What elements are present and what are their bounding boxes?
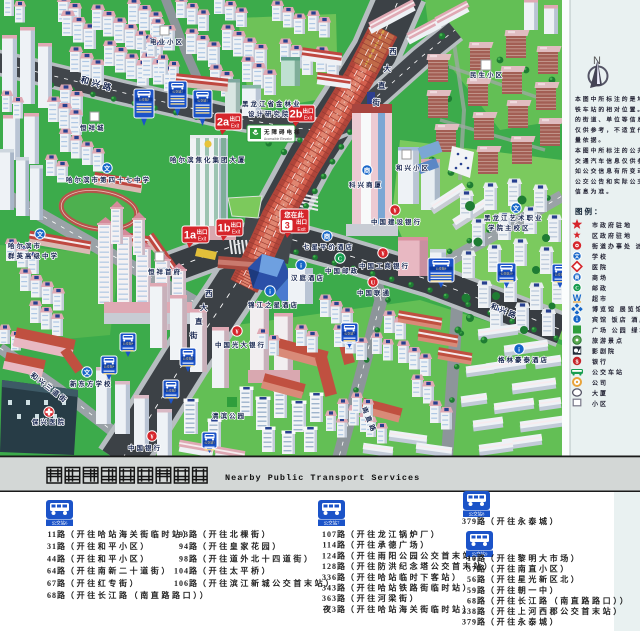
svg-text:出口: 出口 bbox=[196, 228, 207, 236]
svg-text:街: 街 bbox=[372, 97, 383, 107]
svg-text:出口: 出口 bbox=[296, 218, 307, 226]
svg-text:西: 西 bbox=[389, 47, 399, 56]
svg-text:公交站1: 公交站1 bbox=[197, 98, 208, 103]
svg-text:Accessible Elevator: Accessible Elevator bbox=[264, 137, 293, 141]
svg-text:本图中所标注的是地: 本图中所标注的是地 bbox=[575, 95, 640, 103]
svg-text:恒祥城: 恒祥城 bbox=[80, 123, 106, 132]
svg-text:（开往北棵街）: （开往北棵街） bbox=[198, 529, 272, 539]
svg-text:公交站10: 公交站10 bbox=[500, 271, 513, 276]
svg-text:64路: 64路 bbox=[47, 566, 66, 576]
svg-text:（开往承德广场）: （开往承德广场） bbox=[346, 540, 431, 550]
svg-text:出口: 出口 bbox=[229, 115, 240, 123]
svg-text:锦江之星酒店: 锦江之星酒店 bbox=[248, 300, 299, 309]
svg-text:68路: 68路 bbox=[47, 590, 66, 600]
svg-text:出口: 出口 bbox=[302, 107, 313, 115]
svg-text:Exit: Exit bbox=[297, 227, 306, 233]
svg-text:公交站5: 公交站5 bbox=[204, 440, 215, 445]
svg-text:公交站5: 公交站5 bbox=[166, 388, 177, 393]
svg-text:338路: 338路 bbox=[462, 606, 486, 616]
svg-text:106路: 106路 bbox=[174, 578, 198, 588]
svg-text:学院主校区: 学院主校区 bbox=[488, 223, 531, 232]
svg-text:哈尔滨市: 哈尔滨市 bbox=[8, 241, 42, 250]
svg-text:文: 文 bbox=[103, 163, 111, 172]
svg-text:公交站6: 公交站6 bbox=[436, 266, 447, 271]
svg-text:（开往永泰城）: （开往永泰城） bbox=[486, 516, 560, 526]
svg-text:Exit: Exit bbox=[232, 230, 241, 236]
svg-text:Nearby Public Transport Servic: Nearby Public Transport Services bbox=[225, 473, 420, 483]
svg-text:104路: 104路 bbox=[174, 566, 198, 576]
svg-text:（开往南新二十道街）: （开往南新二十道街） bbox=[66, 566, 172, 576]
svg-text:i: i bbox=[269, 288, 271, 295]
svg-text:夜3路: 夜3路 bbox=[322, 604, 346, 614]
svg-text:哈尔滨市第四十七中学: 哈尔滨市第四十七中学 bbox=[66, 175, 151, 184]
svg-text:（开往太平桥）: （开往太平桥） bbox=[198, 566, 272, 576]
svg-text:保兴医院: 保兴医院 bbox=[31, 417, 66, 426]
svg-text:（开往红专街）: （开往红专街） bbox=[66, 578, 140, 588]
svg-text:商: 商 bbox=[364, 165, 371, 174]
svg-text:直: 直 bbox=[195, 316, 205, 326]
svg-text:（开往皇家花园）: （开往皇家花园） bbox=[198, 541, 283, 551]
svg-text:（开往朝一中）: （开往朝一中） bbox=[486, 585, 560, 595]
svg-text:公交站4: 公交站4 bbox=[104, 364, 115, 369]
svg-text:（开往长江路（南直路路口））: （开往长江路（南直路路口）） bbox=[66, 590, 210, 600]
svg-text:中国银行: 中国银行 bbox=[128, 443, 162, 452]
svg-text:银行: 银行 bbox=[592, 358, 608, 366]
svg-text:$: $ bbox=[575, 360, 578, 366]
svg-text:旅游景点: 旅游景点 bbox=[591, 337, 624, 345]
svg-text:区政府驻地: 区政府驻地 bbox=[592, 232, 632, 240]
svg-text:格林豪泰酒店: 格林豪泰酒店 bbox=[498, 355, 549, 364]
svg-text:出口: 出口 bbox=[230, 221, 241, 229]
svg-text:商: 商 bbox=[324, 231, 331, 240]
svg-text:67路: 67路 bbox=[47, 578, 66, 588]
svg-text:信息为准。: 信息为准。 bbox=[575, 188, 614, 196]
svg-text:Exit: Exit bbox=[304, 116, 313, 122]
svg-text:3: 3 bbox=[285, 221, 290, 231]
svg-text:U: U bbox=[371, 279, 376, 286]
svg-text:新东方学校: 新东方学校 bbox=[70, 379, 113, 388]
svg-text:影剧院: 影剧院 bbox=[592, 348, 616, 356]
svg-text:379路: 379路 bbox=[462, 516, 486, 526]
svg-text:铁车站的相对位置。图中: 铁车站的相对位置。图中 bbox=[575, 105, 640, 113]
svg-text:公交站5: 公交站5 bbox=[183, 356, 194, 361]
svg-text:1a: 1a bbox=[184, 230, 197, 242]
svg-text:公司: 公司 bbox=[592, 379, 608, 387]
svg-text:C: C bbox=[575, 286, 579, 291]
svg-text:（开往道外北十四道街）: （开往道外北十四道街） bbox=[198, 553, 315, 563]
svg-text:您在此: 您在此 bbox=[284, 210, 304, 219]
svg-text:小区: 小区 bbox=[591, 400, 608, 408]
svg-text:学校: 学校 bbox=[592, 253, 608, 261]
svg-text:清滨公园: 清滨公园 bbox=[212, 411, 246, 420]
svg-text:中国邮政: 中国邮政 bbox=[325, 266, 359, 275]
svg-text:379路: 379路 bbox=[462, 617, 486, 627]
svg-text:的街道、单位等信息位置: 的街道、单位等信息位置 bbox=[575, 116, 640, 124]
svg-text:11路: 11路 bbox=[47, 529, 66, 539]
svg-text:公交站2: 公交站2 bbox=[172, 89, 183, 94]
svg-text:（开往和平小区）: （开往和平小区） bbox=[66, 541, 151, 551]
svg-text:2b: 2b bbox=[290, 109, 303, 121]
svg-text:黑龙江省金林业: 黑龙江省金林业 bbox=[242, 99, 302, 108]
svg-text:（开往滨江新城公交首末站）: （开往滨江新城公交首末站） bbox=[198, 578, 336, 588]
svg-text:量依据。: 量依据。 bbox=[575, 136, 606, 144]
svg-text:公交站7: 公交站7 bbox=[324, 520, 340, 527]
svg-text:图例：: 图例： bbox=[575, 206, 604, 216]
svg-text:七星平价酒店: 七星平价酒店 bbox=[303, 242, 354, 251]
svg-text:（开往永泰城）: （开往永泰城） bbox=[486, 617, 560, 627]
svg-text:中国建设银行: 中国建设银行 bbox=[371, 217, 422, 226]
svg-text:直: 直 bbox=[378, 80, 388, 90]
svg-text:（开往和平小区）: （开往和平小区） bbox=[66, 553, 151, 563]
svg-text:56路: 56路 bbox=[467, 574, 486, 584]
svg-text:44路: 44路 bbox=[47, 553, 66, 563]
svg-text:107路: 107路 bbox=[322, 529, 346, 539]
svg-text:邮政: 邮政 bbox=[592, 285, 608, 293]
svg-text:124路: 124路 bbox=[322, 550, 346, 560]
svg-text:（开往哈站临时下客站）: （开往哈站临时下客站） bbox=[346, 572, 463, 582]
svg-text:公交公告和实际公交站牌: 公交公告和实际公交站牌 bbox=[575, 177, 640, 185]
svg-text:商: 商 bbox=[574, 274, 579, 281]
svg-text:哈尔滨焦化集团大厦: 哈尔滨焦化集团大厦 bbox=[170, 155, 247, 164]
svg-text:（开往南直小区）: （开往南直小区） bbox=[486, 564, 571, 574]
svg-text:343路: 343路 bbox=[322, 583, 346, 593]
svg-text:363路: 363路 bbox=[322, 593, 346, 603]
svg-text:（开往河梁街）: （开往河梁街） bbox=[346, 593, 420, 603]
svg-text:和兴小区: 和兴小区 bbox=[395, 163, 430, 172]
svg-text:68路: 68路 bbox=[467, 595, 486, 605]
svg-text:街道办事处 派出所: 街道办事处 派出所 bbox=[591, 243, 640, 251]
svg-text:交通汽车信息仅供参考，: 交通汽车信息仅供参考， bbox=[575, 157, 640, 165]
svg-text:中国工商银行: 中国工商银行 bbox=[359, 261, 410, 270]
svg-text:37路: 37路 bbox=[467, 564, 486, 574]
svg-text:西: 西 bbox=[205, 289, 215, 298]
svg-text:宾馆 饭店 酒店: 宾馆 饭店 酒店 bbox=[592, 316, 640, 324]
svg-text:恒祥首府: 恒祥首府 bbox=[148, 267, 182, 276]
svg-text:i: i bbox=[518, 346, 520, 353]
svg-text:设计研究院: 设计研究院 bbox=[248, 109, 291, 118]
svg-text:1b: 1b bbox=[218, 223, 231, 235]
svg-text:文: 文 bbox=[512, 203, 520, 212]
svg-text:超市: 超市 bbox=[591, 295, 608, 303]
svg-text:（开往哈站海关街临时站）: （开往哈站海关街临时站） bbox=[346, 604, 473, 614]
svg-text:Exit: Exit bbox=[231, 124, 240, 130]
svg-text:无障碍电梯: 无障碍电梯 bbox=[263, 128, 302, 136]
svg-text:街: 街 bbox=[189, 330, 200, 340]
svg-text:98路: 98路 bbox=[179, 553, 198, 563]
svg-text:民生小区: 民生小区 bbox=[470, 70, 504, 79]
svg-text:公交站6: 公交站6 bbox=[52, 520, 68, 527]
svg-text:31路: 31路 bbox=[47, 541, 66, 551]
svg-text:（开往哈站海关街临时站）: （开往哈站海关街临时站） bbox=[66, 529, 193, 539]
svg-text:C: C bbox=[338, 255, 343, 262]
svg-text:114路: 114路 bbox=[322, 540, 346, 550]
svg-text:公交站7: 公交站7 bbox=[344, 331, 355, 336]
svg-text:汉庭酒店: 汉庭酒店 bbox=[291, 273, 325, 282]
svg-text:商场: 商场 bbox=[592, 274, 608, 282]
svg-text:大: 大 bbox=[384, 63, 394, 73]
svg-text:本图中所标注的公共: 本图中所标注的公共 bbox=[575, 147, 640, 155]
svg-text:Exit: Exit bbox=[198, 237, 207, 243]
svg-text:广场 公园 绿地: 广场 公园 绿地 bbox=[592, 327, 640, 335]
svg-text:2a: 2a bbox=[217, 117, 230, 129]
svg-text:10路: 10路 bbox=[467, 553, 486, 563]
svg-text:59路: 59路 bbox=[467, 585, 486, 595]
svg-text:如公交信息有所变动，以: 如公交信息有所变动，以 bbox=[575, 167, 640, 175]
svg-text:公交站4: 公交站4 bbox=[123, 341, 134, 346]
svg-text:128路: 128路 bbox=[322, 561, 346, 571]
svg-text:仅供参考，不适宜作为丈: 仅供参考，不适宜作为丈 bbox=[574, 126, 640, 134]
svg-text:群英高级中学: 群英高级中学 bbox=[8, 251, 59, 260]
svg-text:94路: 94路 bbox=[179, 541, 198, 551]
svg-text:文: 文 bbox=[36, 229, 44, 238]
svg-text:（开往星光新区北）: （开往星光新区北） bbox=[486, 574, 581, 584]
svg-text:文: 文 bbox=[83, 367, 91, 376]
svg-text:336路: 336路 bbox=[322, 572, 346, 582]
svg-text:博览馆 展览馆: 博览馆 展览馆 bbox=[592, 306, 640, 314]
svg-text:中国联通: 中国联通 bbox=[357, 288, 391, 297]
svg-text:（开往哈站铁路街临时站）: （开往哈站铁路街临时站） bbox=[346, 583, 473, 593]
svg-text:公交车站: 公交车站 bbox=[592, 369, 624, 377]
svg-text:市政府驻地: 市政府驻地 bbox=[592, 222, 632, 230]
svg-text:大: 大 bbox=[200, 302, 210, 312]
svg-text:科兴商厦: 科兴商厦 bbox=[349, 180, 383, 189]
svg-text:中国光大银行: 中国光大银行 bbox=[215, 340, 266, 349]
svg-text:公交站3: 公交站3 bbox=[139, 97, 150, 102]
svg-text:93路: 93路 bbox=[179, 529, 198, 539]
svg-text:（开往龙江锅炉厂）: （开往龙江锅炉厂） bbox=[346, 529, 441, 539]
svg-text:大厦: 大厦 bbox=[592, 390, 608, 398]
svg-text:（开往长江路（南直路路口））: （开往长江路（南直路路口）） bbox=[486, 595, 630, 605]
svg-text:（开往雨阳公园公交首末站）: （开往雨阳公园公交首末站） bbox=[346, 550, 484, 560]
svg-text:（开往黎明大市场）: （开往黎明大市场） bbox=[486, 553, 581, 563]
svg-text:（开往上河西郡公交首末站）: （开往上河西郡公交首末站） bbox=[486, 606, 624, 616]
svg-text:电业小区: 电业小区 bbox=[150, 37, 184, 46]
svg-text:医院: 医院 bbox=[592, 264, 608, 272]
svg-text:黑龙江艺术职业: 黑龙江艺术职业 bbox=[484, 213, 544, 222]
svg-text:i: i bbox=[300, 262, 302, 269]
